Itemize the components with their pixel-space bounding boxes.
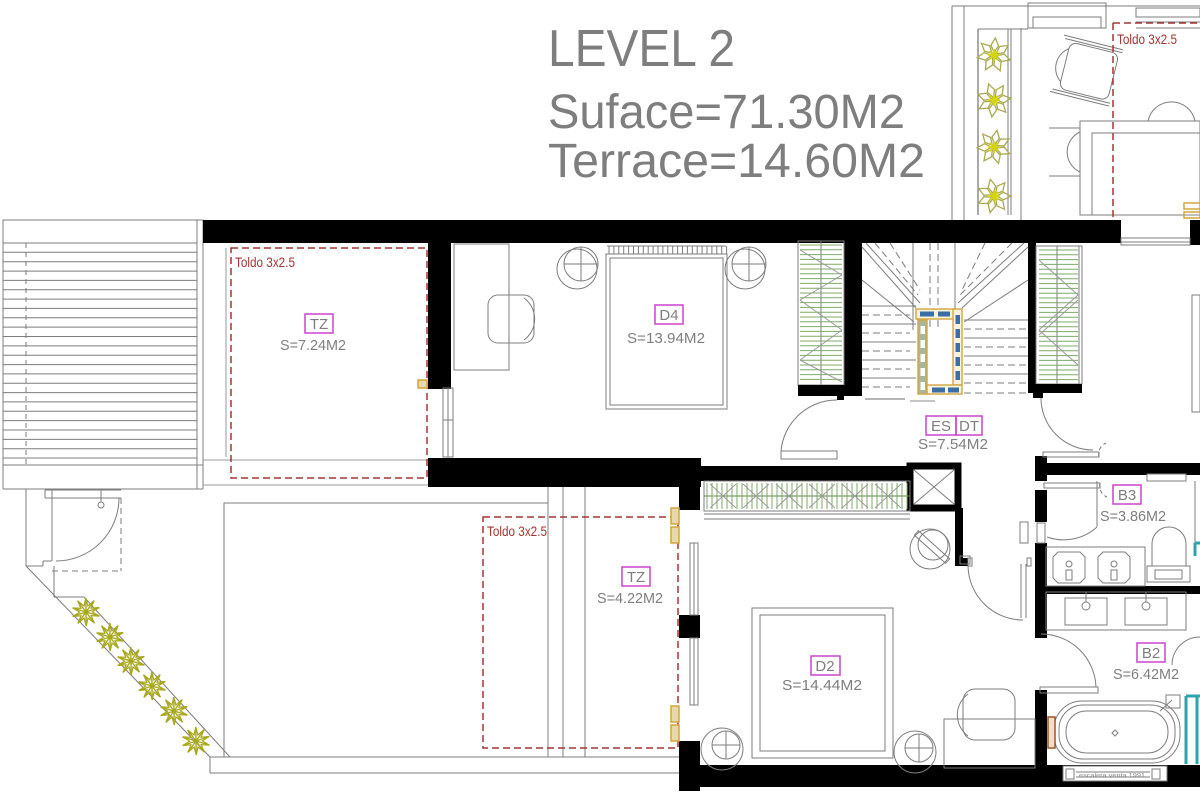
svg-text:ES: ES — [931, 418, 951, 435]
svg-text:S=14.44M2: S=14.44M2 — [782, 677, 862, 694]
svg-text:B2: B2 — [1142, 645, 1160, 662]
svg-text:S=7.54M2: S=7.54M2 — [918, 436, 988, 453]
svg-text:LEVEL 2: LEVEL 2 — [548, 20, 735, 78]
svg-text:Toldo 3x2.5: Toldo 3x2.5 — [235, 255, 295, 270]
svg-text:S=7.24M2: S=7.24M2 — [280, 337, 346, 354]
svg-text:Suface=71.30M2: Suface=71.30M2 — [548, 86, 905, 139]
svg-text:S=6.42M2: S=6.42M2 — [1113, 666, 1179, 683]
svg-text:TZ: TZ — [627, 569, 645, 586]
svg-text:D2: D2 — [815, 658, 834, 675]
svg-text:Terrace=14.60M2: Terrace=14.60M2 — [548, 135, 925, 188]
svg-text:DT: DT — [959, 418, 979, 435]
svg-text:S=4.22M2: S=4.22M2 — [597, 590, 663, 607]
svg-text:D4: D4 — [659, 307, 678, 324]
svg-text:Toldo 3x2.5: Toldo 3x2.5 — [1117, 32, 1177, 47]
svg-text:S=3.86M2: S=3.86M2 — [1100, 508, 1166, 525]
svg-text:Toldo 3x2.5: Toldo 3x2.5 — [487, 524, 547, 539]
svg-text:S=13.94M2: S=13.94M2 — [627, 330, 705, 347]
svg-text:B3: B3 — [1118, 487, 1136, 504]
svg-text:TZ: TZ — [310, 316, 328, 333]
svg-text:escalera venta 1991: escalera venta 1991 — [1079, 773, 1145, 779]
